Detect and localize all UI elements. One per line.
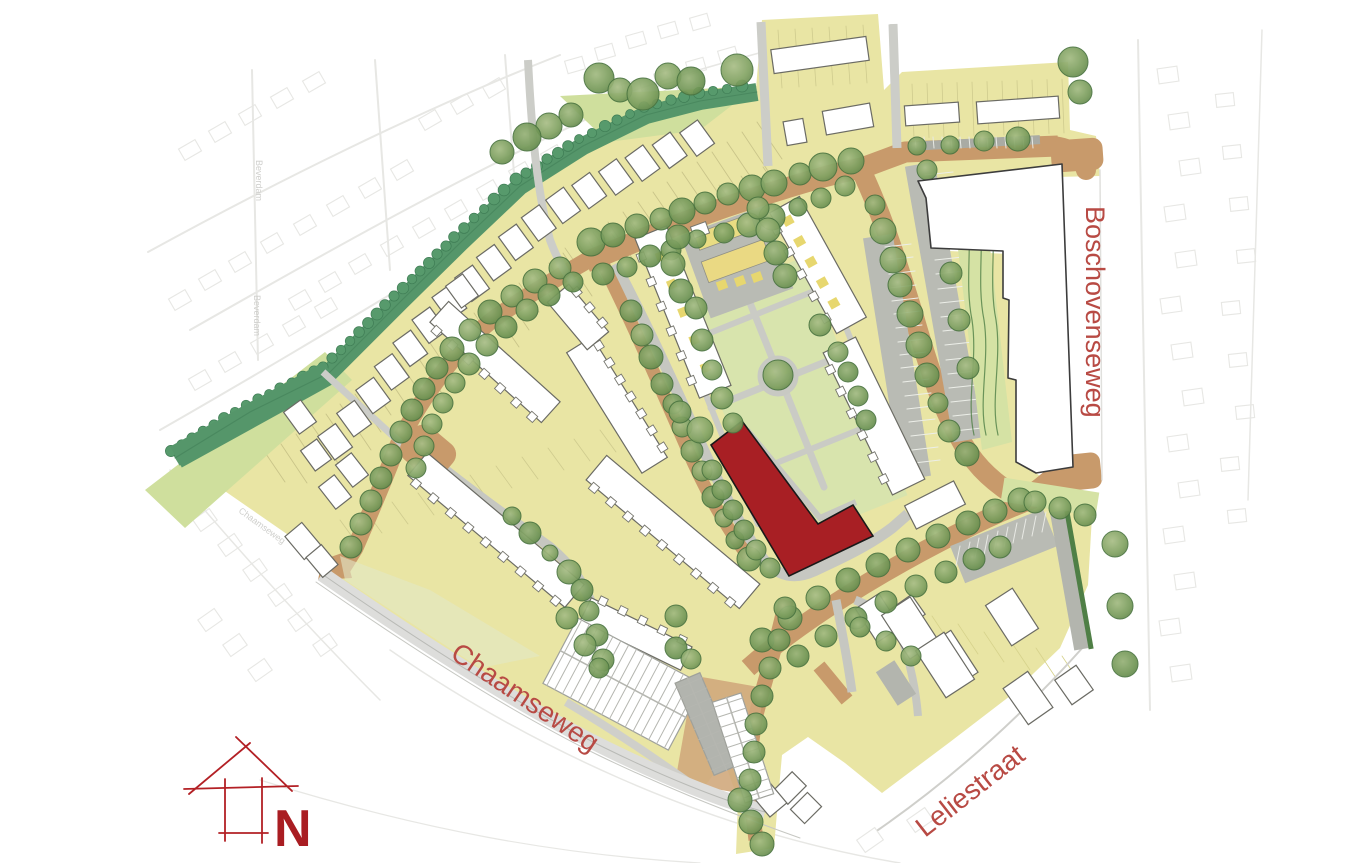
svg-text:Beverdam: Beverdam xyxy=(254,160,264,201)
svg-text:N: N xyxy=(274,800,312,858)
svg-text:Boschovenseweg: Boschovenseweg xyxy=(1080,206,1110,418)
svg-text:Beverdam: Beverdam xyxy=(252,295,262,336)
